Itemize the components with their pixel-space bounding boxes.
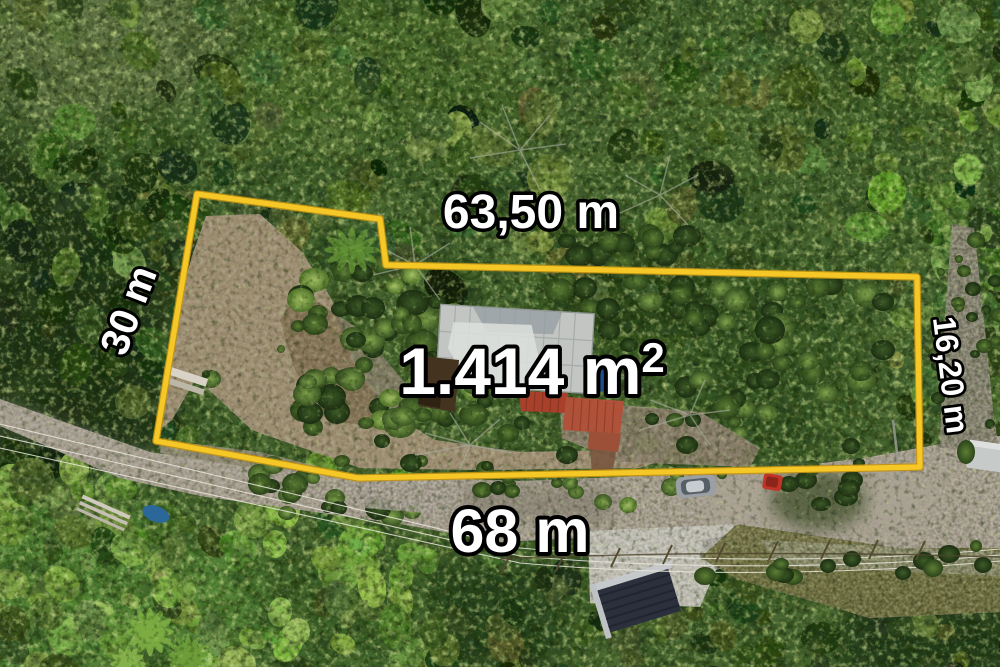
svg-text:1.414 m2: 1.414 m2: [399, 334, 665, 408]
svg-text:63,50 m: 63,50 m: [443, 186, 619, 239]
svg-text:68 m: 68 m: [450, 497, 589, 565]
